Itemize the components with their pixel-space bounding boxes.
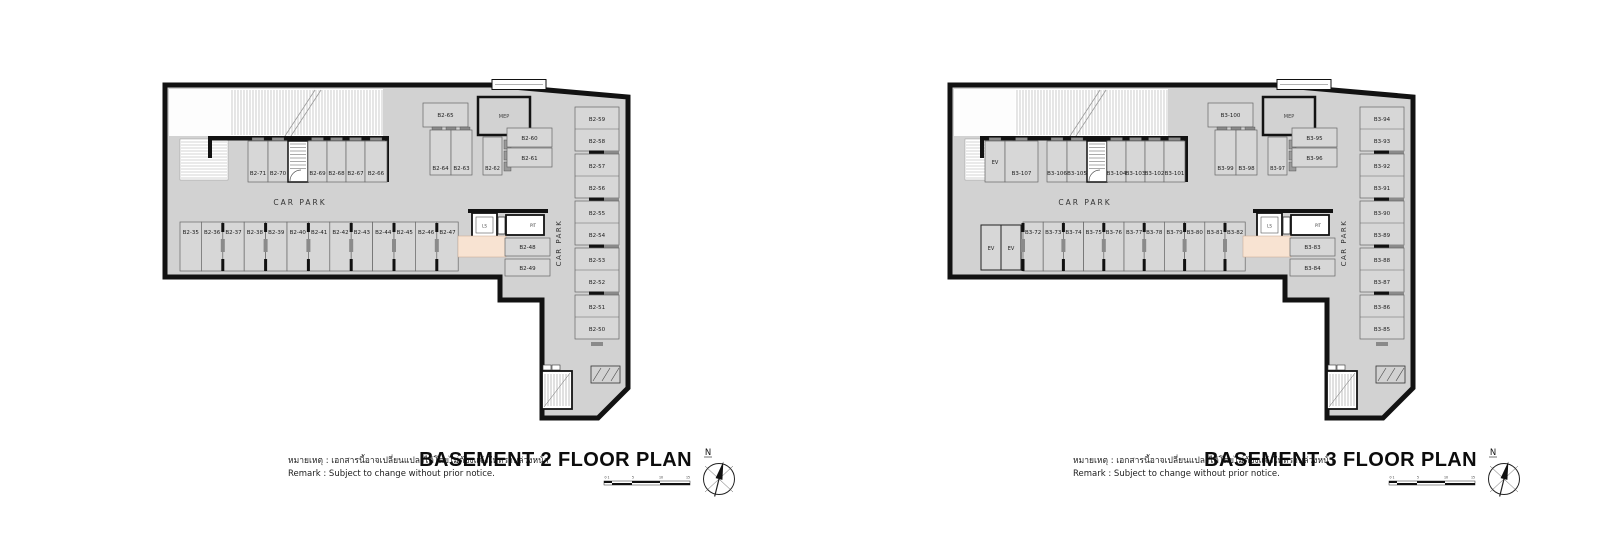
cabinet: [1328, 365, 1336, 370]
column: [221, 223, 224, 232]
column: [350, 259, 353, 271]
pit-room: [506, 215, 544, 235]
stall-label: B3-74: [1065, 230, 1082, 236]
column: [1102, 259, 1105, 271]
pit-label: PIT: [1315, 223, 1322, 228]
ramp-marks: [591, 366, 620, 383]
stall-label: B2-41: [311, 230, 327, 236]
stall-label: B3-73: [1045, 230, 1062, 236]
stall-label: B2-68: [328, 171, 345, 177]
stall-label: B2-39: [268, 230, 285, 236]
stall-label: B3-100: [1221, 113, 1241, 119]
stall-label: B3-85: [1374, 327, 1391, 333]
stall-label: B3-96: [1306, 156, 1323, 162]
stall-label: B3-81: [1207, 230, 1223, 236]
column: [350, 223, 353, 232]
lift-label: LS: [482, 224, 487, 229]
interior-wall: [208, 136, 212, 158]
ramp-area: [954, 89, 1015, 136]
stall-label: B3-94: [1374, 117, 1391, 123]
column: [1183, 259, 1186, 271]
column: [307, 223, 310, 232]
wheel-stop: [252, 138, 264, 141]
wheel-stop: [1016, 138, 1028, 141]
stall-label: B2-69: [309, 171, 326, 177]
stall-label: B2-67: [347, 171, 364, 177]
column: [1022, 259, 1025, 271]
stall-label: B3-92: [1374, 164, 1390, 170]
wheel-stop: [1217, 127, 1227, 130]
stall-label: B2-58: [589, 139, 606, 145]
wheel-stop: [350, 138, 362, 141]
stall-label: B2-38: [247, 230, 264, 236]
cabinet: [543, 365, 551, 370]
column: [1183, 223, 1186, 232]
wheel-stop: [221, 239, 225, 252]
stall-label: B2-61: [521, 156, 537, 162]
wheel-stop: [446, 127, 456, 130]
stall-label: B3-95: [1306, 136, 1323, 142]
stall-label: B3-72: [1025, 230, 1041, 236]
column: [1143, 223, 1146, 232]
wheel-stop: [1376, 342, 1388, 346]
mep-label: MEP: [499, 114, 510, 120]
ramp-marks: [1376, 366, 1405, 383]
stall-label: B2-71: [250, 171, 266, 177]
stall-label: B2-46: [418, 230, 435, 236]
wheel-stop: [989, 138, 1001, 141]
cabinet: [552, 365, 560, 370]
stall-label: B3-98: [1238, 166, 1255, 172]
lift-lobby: [458, 236, 506, 257]
stall-label: B2-62: [485, 166, 500, 172]
stall-label: B2-63: [453, 166, 470, 172]
stall-label: B2-35: [183, 230, 200, 236]
pit-room: [1291, 215, 1329, 235]
mep-label: MEP: [1284, 114, 1295, 120]
stall-label: B2-59: [589, 117, 606, 123]
stall-label: B2-51: [589, 305, 605, 311]
duct-shaft: [498, 217, 505, 234]
stall-label: B2-40: [290, 230, 307, 236]
cabinet: [1337, 365, 1345, 370]
wheel-stop: [272, 138, 284, 141]
stall-label: B2-56: [589, 186, 606, 192]
wheel-stop: [1021, 239, 1025, 252]
column: [1143, 259, 1146, 271]
interior-wall: [208, 136, 389, 141]
column: [1102, 223, 1105, 232]
stall-label: B3-106: [1047, 171, 1067, 177]
stall-label: B2-54: [589, 233, 606, 239]
stall-label: B2-43: [354, 230, 371, 236]
column: [264, 223, 267, 232]
interior-wall: [980, 136, 984, 158]
stall-label: B3-97: [1270, 166, 1285, 172]
stall-label: B3-86: [1374, 305, 1391, 311]
plan-basement-3: EVB3-107B3-106B3-105B3-104B3-103B3-102B3…: [940, 78, 1540, 518]
stall-label: B2-57: [589, 164, 606, 170]
ev-stall-label: EV: [992, 160, 999, 166]
stall-label: B3-102: [1145, 171, 1165, 177]
car-park-label: CAR PARK: [273, 198, 326, 207]
wheel-stop: [331, 138, 343, 141]
stall-label: B2-55: [589, 211, 606, 217]
wheel-stop: [1130, 138, 1142, 141]
stall-label: B2-53: [589, 258, 606, 264]
stall-label: B3-82: [1227, 230, 1243, 236]
stall-label: B3-78: [1146, 230, 1163, 236]
stall-label: B3-101: [1165, 171, 1185, 177]
stall-label: B3-84: [1304, 266, 1321, 272]
stall-label: B3-93: [1374, 139, 1391, 145]
column: [1224, 259, 1227, 271]
car-park-side-label: CAR PARK: [555, 220, 563, 267]
stall-label: B3-89: [1374, 233, 1391, 239]
pit-label: PIT: [530, 223, 537, 228]
stall-label: B2-64: [432, 166, 449, 172]
stall-label: B3-76: [1106, 230, 1123, 236]
car-park-label: CAR PARK: [1058, 198, 1111, 207]
wheel-stop: [460, 127, 470, 130]
stall-label: B2-49: [519, 266, 536, 272]
stall-label: B3-87: [1374, 280, 1391, 286]
stall-label: B2-70: [270, 171, 287, 177]
wheel-stop: [1245, 127, 1255, 130]
column: [435, 259, 438, 271]
column: [435, 223, 438, 232]
stall-label: B2-42: [332, 230, 348, 236]
column: [1022, 223, 1025, 232]
stall-label: B3-103: [1126, 171, 1146, 177]
wheel-stop: [264, 239, 268, 252]
lift-label: LS: [1267, 224, 1272, 229]
stall-label: B3-80: [1187, 230, 1204, 236]
stall-label: B2-60: [521, 136, 538, 142]
stall-label: B2-47: [439, 230, 456, 236]
wheel-stop: [392, 239, 396, 252]
wheel-stop: [1071, 138, 1083, 141]
wheel-stop: [435, 239, 439, 252]
wheel-stop: [312, 138, 324, 141]
stall-label: B3-90: [1374, 211, 1391, 217]
plan-basement-2: B2-71B2-70B2-69B2-68B2-67B2-66CAR PARKCA…: [155, 78, 755, 518]
stall-label: B2-65: [437, 113, 454, 119]
ramp-area: [169, 89, 230, 136]
wheel-stop: [1169, 138, 1181, 141]
column: [393, 259, 396, 271]
basement-3-plan-drawing: EVB3-107B3-106B3-105B3-104B3-103B3-102B3…: [940, 78, 1540, 518]
wheel-stop: [1102, 239, 1106, 252]
column: [393, 223, 396, 232]
duct-shaft: [1283, 217, 1290, 234]
stall-label: B2-50: [589, 327, 606, 333]
wheel-stop: [432, 127, 442, 130]
column: [221, 259, 224, 271]
wheel-stop: [1061, 239, 1065, 252]
wheel-stop: [1183, 239, 1187, 252]
column: [307, 259, 310, 271]
wheel-stop: [1051, 138, 1063, 141]
stall-label: B3-77: [1126, 230, 1143, 236]
wheel-stop: [349, 239, 353, 252]
wheel-stop: [1142, 239, 1146, 252]
stall-label: B3-105: [1067, 171, 1087, 177]
ev-stall-label: EV: [988, 246, 995, 252]
lift-lobby: [1243, 236, 1291, 257]
stall-label: B3-99: [1217, 166, 1234, 172]
stall-label: B3-107: [1012, 171, 1032, 177]
stall-label: B3-104: [1107, 171, 1127, 177]
stall-label: B2-48: [519, 245, 536, 251]
stall-label: B3-75: [1086, 230, 1103, 236]
wheel-stop: [591, 342, 603, 346]
stall-label: B2-36: [204, 230, 221, 236]
stall-label: B3-91: [1374, 186, 1390, 192]
stall-label: B2-37: [225, 230, 242, 236]
wheel-stop: [306, 239, 310, 252]
column: [264, 259, 267, 271]
wheel-stop: [1111, 138, 1123, 141]
stall-label: B2-66: [368, 171, 385, 177]
wheel-stop: [1223, 239, 1227, 252]
stall-label: B3-79: [1166, 230, 1183, 236]
stall-label: B2-45: [397, 230, 414, 236]
column: [1062, 259, 1065, 271]
wheel-stop: [370, 138, 382, 141]
column: [1062, 223, 1065, 232]
stall-label: B3-83: [1304, 245, 1321, 251]
stall-label: B2-44: [375, 230, 392, 236]
wheel-stop: [1231, 127, 1241, 130]
floor-plan-sheet: B2-71B2-70B2-69B2-68B2-67B2-66CAR PARKCA…: [0, 0, 1600, 534]
car-park-side-label: CAR PARK: [1340, 220, 1348, 267]
stall-label: B3-88: [1374, 258, 1391, 264]
column: [1224, 223, 1227, 232]
ev-stall-label: EV: [1008, 246, 1015, 252]
wheel-stop: [1149, 138, 1161, 141]
stall-label: B2-52: [589, 280, 605, 286]
basement-2-plan-drawing: B2-71B2-70B2-69B2-68B2-67B2-66CAR PARKCA…: [155, 78, 755, 518]
